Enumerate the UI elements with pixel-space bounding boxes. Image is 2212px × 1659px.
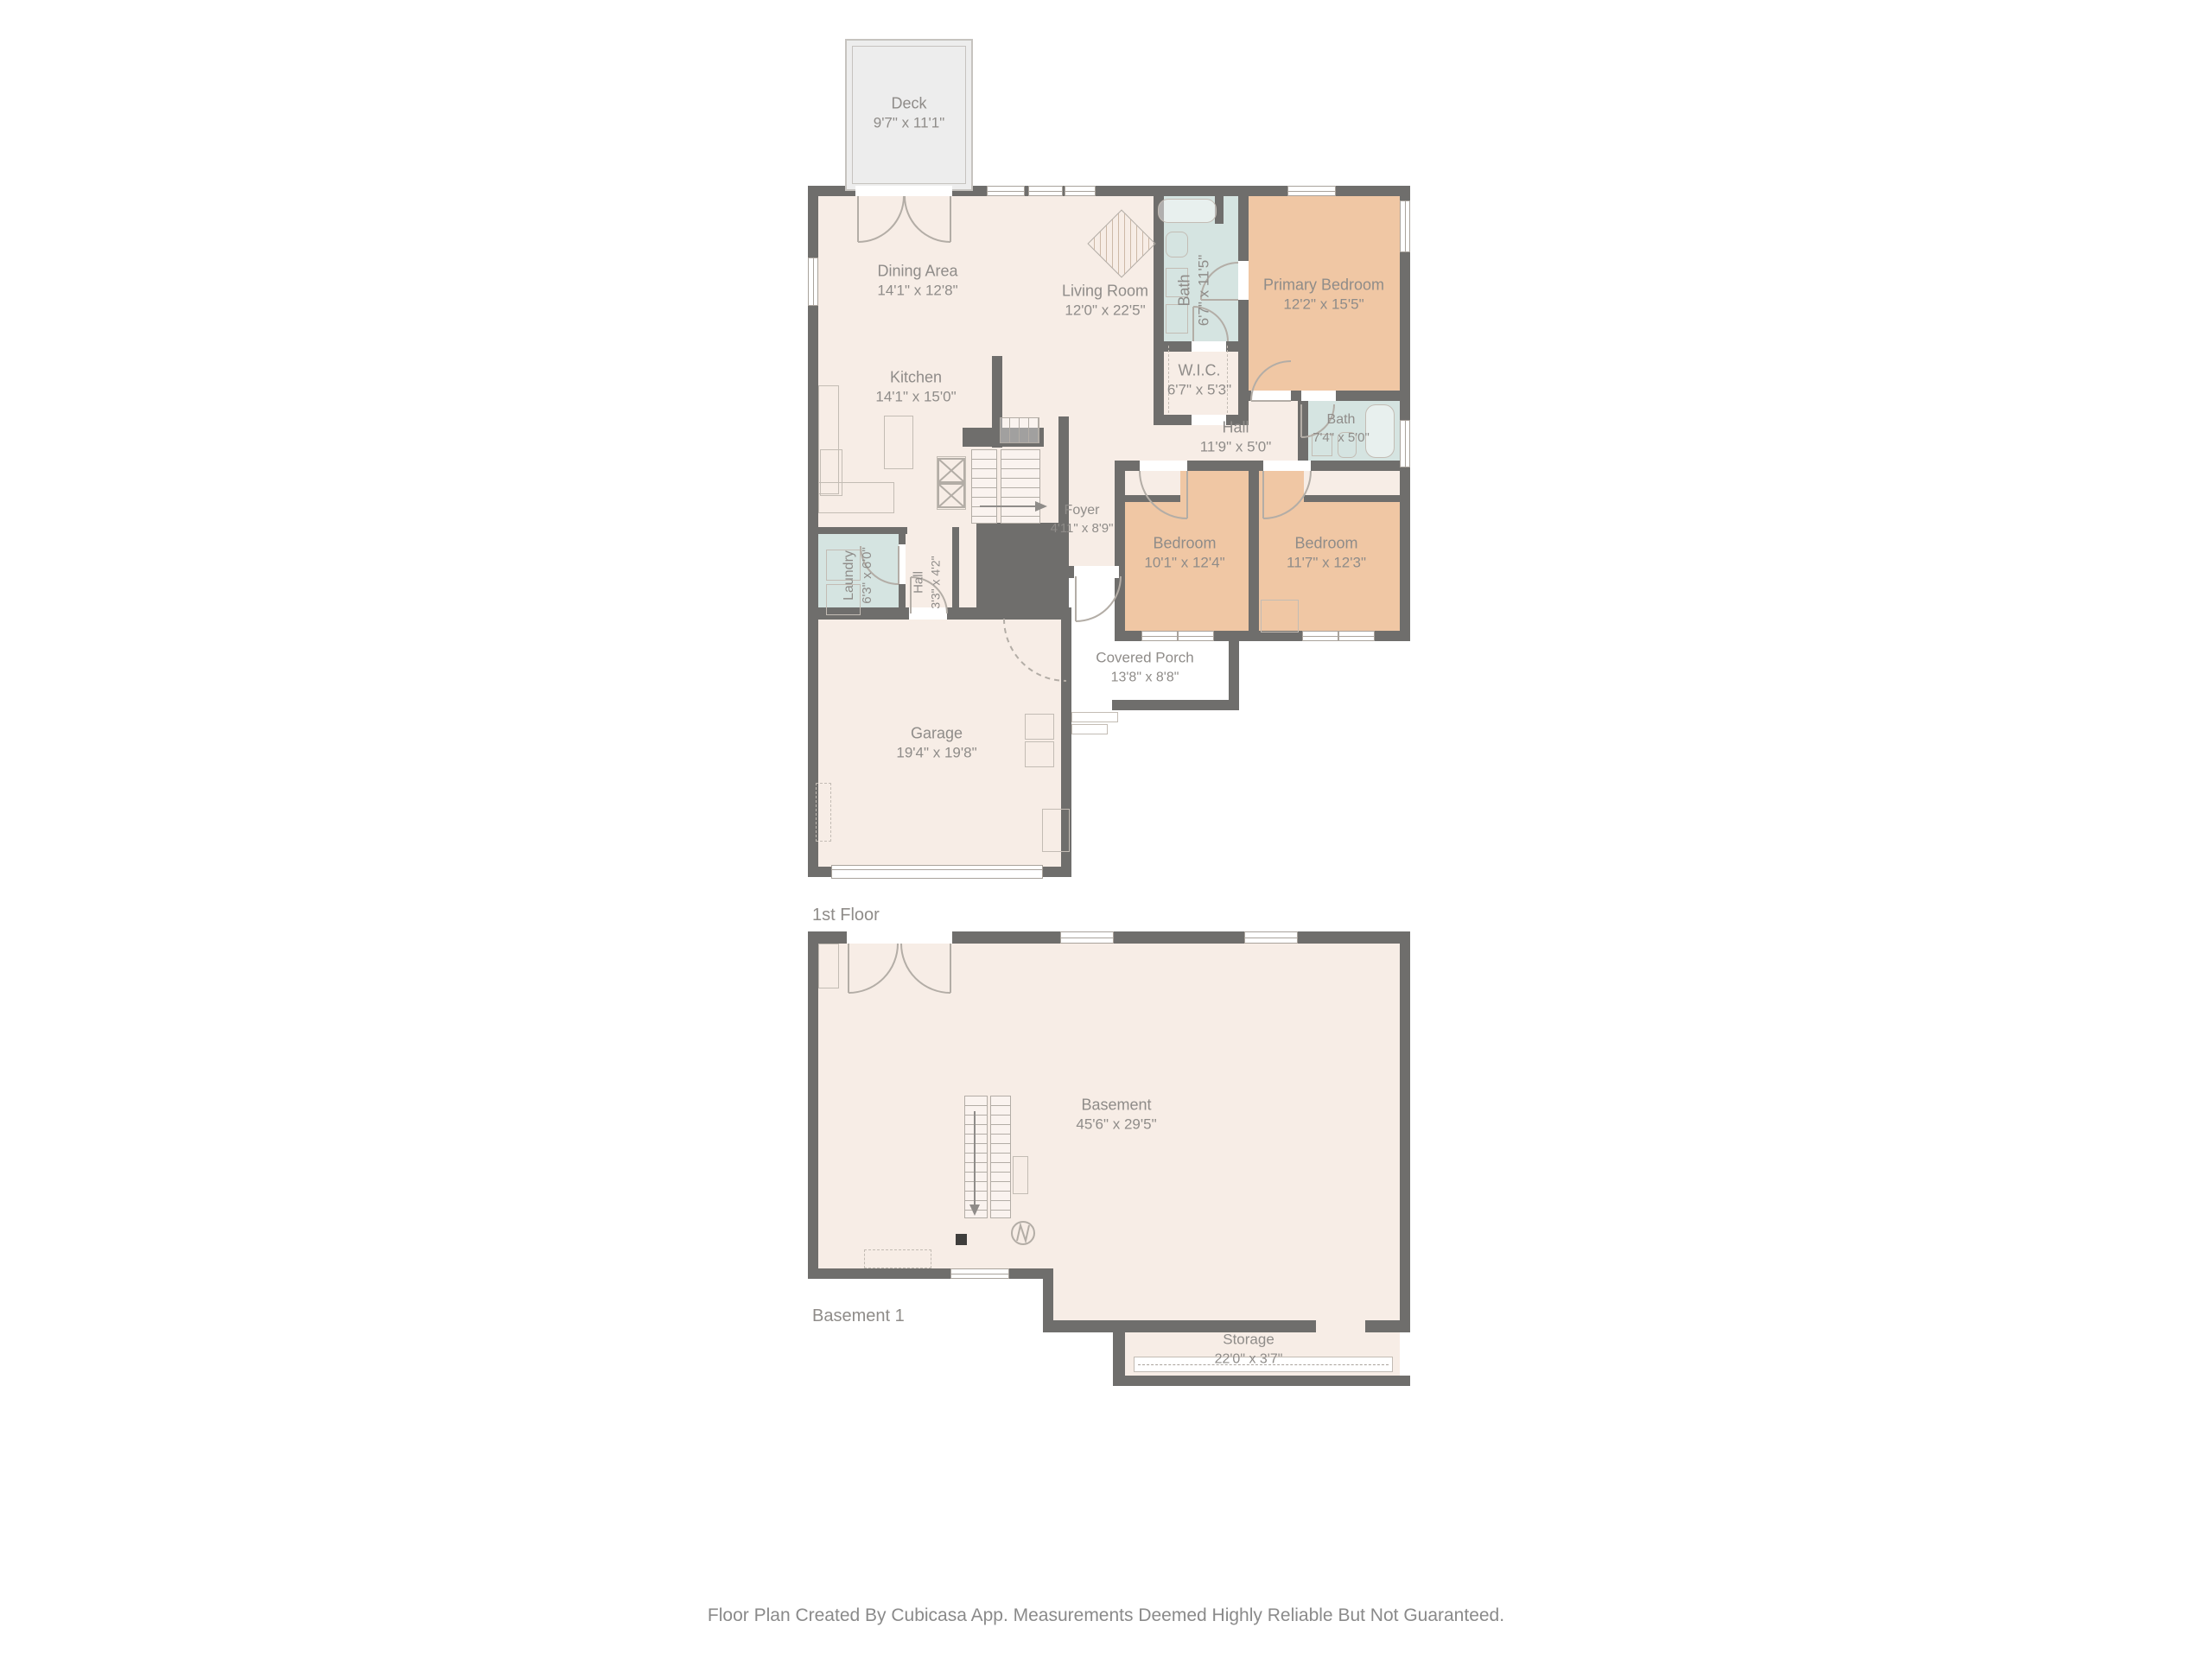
deck-door-opening [855, 186, 952, 196]
basement-lower-right [1053, 1268, 1400, 1320]
stairs-flight-right [1001, 449, 1040, 524]
closet2-wall [1304, 495, 1400, 502]
wall-b-left [808, 931, 818, 1279]
label-dining: Dining Area 14'1" x 12'8" [877, 260, 957, 301]
label-laundry: Laundry 6'3" x 6'0" [840, 547, 876, 604]
window-primary-right [1400, 200, 1410, 252]
bathtub-right-bath [1365, 404, 1395, 458]
front-door-opening [1074, 566, 1119, 578]
label-kitchen: Kitchen 14'1" x 15'0" [875, 366, 956, 407]
garage-unit3 [1042, 809, 1070, 852]
label-hall-small: Hall 3'3" x 4'2" [910, 556, 944, 608]
basement-stair-landing [1013, 1156, 1028, 1194]
window-primary-top [1287, 186, 1336, 196]
floorplan-canvas: Deck 9'7" x 11'1" Dining Area 14'1" x 12… [0, 0, 2212, 1659]
bath-wic-door-opening [1192, 341, 1226, 352]
window-living-2 [1028, 186, 1063, 196]
window-living-3 [1065, 186, 1096, 196]
wall-b-bottom-left [808, 1268, 1053, 1279]
rightbath-door-opening [1301, 391, 1336, 401]
window-basement-1 [1060, 931, 1114, 944]
bedroom1-door-opening [1140, 461, 1187, 471]
toilet-top-bath [1166, 232, 1188, 257]
wall-bath-primary [1238, 186, 1249, 425]
window-bedroom1-a [1141, 631, 1178, 641]
wall-f1-left [808, 186, 818, 618]
foyer-area [1069, 416, 1115, 566]
bathtub-top-bath [1158, 199, 1217, 223]
label-storage: Storage 22'0" x 3'7" [1215, 1331, 1283, 1370]
stairs-upper-flight [1000, 417, 1039, 443]
window-dining-left [808, 257, 818, 306]
label-bath-right: Bath 7'4" x 5'0" [1313, 410, 1370, 447]
label-basement: Basement 45'6" x 29'5" [1076, 1094, 1156, 1135]
basement-left-nook [818, 944, 839, 988]
wall-porch-bottom [1112, 700, 1239, 710]
window-basement-2 [1244, 931, 1298, 944]
floor-label-basement: Basement 1 [812, 1306, 905, 1326]
wall-hall-small-right [952, 527, 959, 615]
primary-door-opening [1251, 391, 1291, 401]
basement-dashed-pad [864, 1249, 931, 1268]
wall-storage-bottom [1113, 1376, 1410, 1386]
porch-step1 [1071, 712, 1118, 722]
window-bedroom1-b [1178, 631, 1214, 641]
storage-doorway [1316, 1320, 1365, 1332]
wall-laundry-frame [812, 527, 907, 534]
label-bath-top: Bath 6'7" x 11'5" [1173, 255, 1214, 327]
bedroom1-closet [1125, 471, 1180, 497]
basement-stairs-right [990, 1096, 1011, 1218]
label-foyer: Foyer 4'11" x 8'9" [1051, 501, 1114, 537]
kitchen-sink [820, 449, 842, 496]
window-basement-bottom [950, 1268, 1009, 1279]
label-wic: W.I.C. 6'7" x 5'3" [1167, 359, 1231, 400]
wall-b-right [1400, 931, 1410, 1332]
bedroom2-notch [1261, 600, 1299, 632]
topbath-door-opening [1238, 261, 1249, 300]
porch-step2 [1071, 724, 1108, 734]
label-bedroom1: Bedroom 10'1" x 12'4" [1144, 532, 1224, 573]
wall-bedroom1-left [1115, 461, 1125, 641]
garage-unit2 [1025, 741, 1054, 767]
window-hall-right [1400, 420, 1410, 467]
wall-f1-right-lower [1400, 461, 1410, 641]
window-bedroom2-b [1338, 631, 1375, 641]
label-primary: Primary Bedroom 12'2" x 15'5" [1263, 274, 1384, 315]
wall-bedroom-divider [1249, 471, 1259, 631]
garage-unit1 [1025, 714, 1054, 740]
basement-stairs-left [964, 1096, 988, 1218]
stove [937, 456, 966, 510]
label-living: Living Room 12'0" x 22'5" [1062, 280, 1148, 321]
kitchen-island [884, 416, 913, 469]
window-bedroom2-a [1302, 631, 1338, 641]
wall-bath-left [1154, 186, 1164, 425]
hall-garage-opening [909, 607, 947, 620]
label-bedroom2: Bedroom 11'7" x 12'3" [1287, 532, 1366, 573]
disclaimer-text: Floor Plan Created By Cubicasa App. Meas… [0, 1605, 2212, 1626]
floor-label-1st: 1st Floor [812, 906, 880, 925]
label-porch: Covered Porch 13'8" x 8'8" [1096, 649, 1193, 688]
dishwasher-dashed [816, 783, 831, 842]
stairs-flight-left [971, 449, 997, 524]
label-hall: Hall 11'9" x 5'0" [1200, 416, 1272, 457]
label-garage: Garage 19'4" x 19'8" [896, 722, 976, 763]
bedroom2-door-opening [1263, 461, 1311, 471]
basement-door-opening [847, 931, 952, 944]
label-deck: Deck 9'7" x 11'1" [874, 92, 945, 133]
garage-door [831, 865, 1043, 879]
window-living-1 [987, 186, 1025, 196]
wall-storage-top-b [1365, 1320, 1400, 1332]
closet1-wall [1125, 495, 1180, 502]
laundry-door-opening [899, 544, 906, 584]
bedroom2-closet [1304, 471, 1400, 497]
